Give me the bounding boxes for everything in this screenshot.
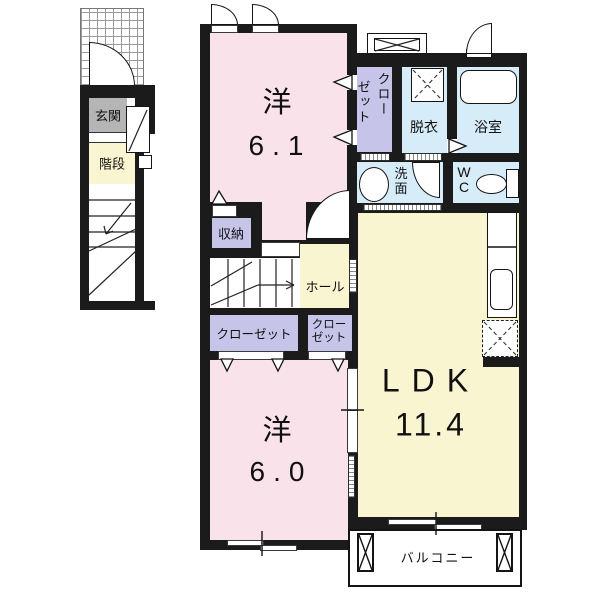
window-swing-icon: [252, 4, 279, 25]
closet-upper-col2: ゼット: [354, 80, 373, 152]
bathroom-door-gap: [447, 139, 457, 153]
hall-label: ホール: [305, 277, 344, 296]
balcony-label: バルコニー: [401, 548, 476, 567]
closet-upper-col1: クロー: [374, 72, 393, 152]
closet-a-label: クローゼット: [216, 324, 291, 343]
counter-end-wall: [483, 357, 527, 367]
bedroom2-window-panel: [227, 540, 264, 546]
window-swing-icon: [211, 4, 238, 25]
bedroom2-ldk-slider-panel: [347, 368, 358, 411]
bedroom1-label: 洋: [262, 79, 291, 121]
f1-left-wall: [80, 85, 89, 310]
bedroom2-window-panel: [260, 545, 297, 551]
toilet-label: W C: [457, 165, 470, 195]
closet-bottom-window: [360, 153, 390, 161]
ldk-label: LDK: [382, 363, 480, 400]
front-door-panel: [126, 106, 150, 153]
window-swing-icon: [466, 23, 492, 54]
refrigerator-space-icon: [482, 320, 518, 357]
window-opening: [252, 25, 279, 33]
balcony-column-icon: [357, 533, 374, 572]
ldk-area-label: 11.4: [395, 407, 467, 444]
toilet-tank: [506, 169, 519, 198]
stairs2f-area: [210, 258, 303, 308]
meter-box-inner: [374, 38, 420, 51]
wall-notch: [138, 155, 152, 169]
bedroom1-extension: [262, 202, 306, 240]
bathtub-icon: [460, 70, 517, 104]
f1-top-wall: [80, 85, 155, 98]
toilet-icon: [476, 174, 507, 194]
washbasin-icon: [359, 167, 389, 202]
bedroom1-stairs-opening: [261, 242, 300, 257]
balcony-column-icon: [496, 533, 513, 572]
washing-machine-space-icon: [411, 68, 444, 102]
window-opening: [211, 25, 238, 33]
f1-stairs-label: 階段: [99, 154, 125, 173]
f1-bottom-wall: [80, 301, 155, 310]
bathroom-label: 浴室: [474, 117, 502, 137]
washroom-label: 洗 面: [394, 166, 407, 196]
dressing-doorway: [404, 153, 442, 161]
storage-sliding-door: [212, 205, 237, 217]
dressing-room-label: 脱衣: [410, 117, 438, 137]
washroom-sliding-doorway: [363, 204, 442, 211]
closet-b-label: クロー ゼット: [312, 319, 347, 345]
bedroom2-area: [210, 360, 348, 540]
hall-ldk-doorway: [349, 259, 357, 293]
sliding-door-pocket: [348, 455, 355, 498]
entrance-label: 玄関: [95, 106, 121, 125]
storage-label: 収納: [218, 224, 244, 243]
bedroom1-area-label: 6.1: [249, 130, 312, 162]
floor-plan-canvas: 玄関 階段: [0, 0, 600, 600]
bedroom2-label: 洋: [262, 407, 291, 449]
bedroom2-ldk-slider-panel: [347, 410, 358, 453]
closet-upper-label: クロー ゼット: [355, 72, 391, 152]
bedroom2-area-label: 6.0: [250, 456, 313, 488]
closet-b-sliding-door: [308, 351, 346, 360]
kitchen-sink: [490, 269, 513, 310]
closet-a-sliding-door: [218, 351, 284, 360]
ldk-window-panel: [388, 519, 437, 525]
